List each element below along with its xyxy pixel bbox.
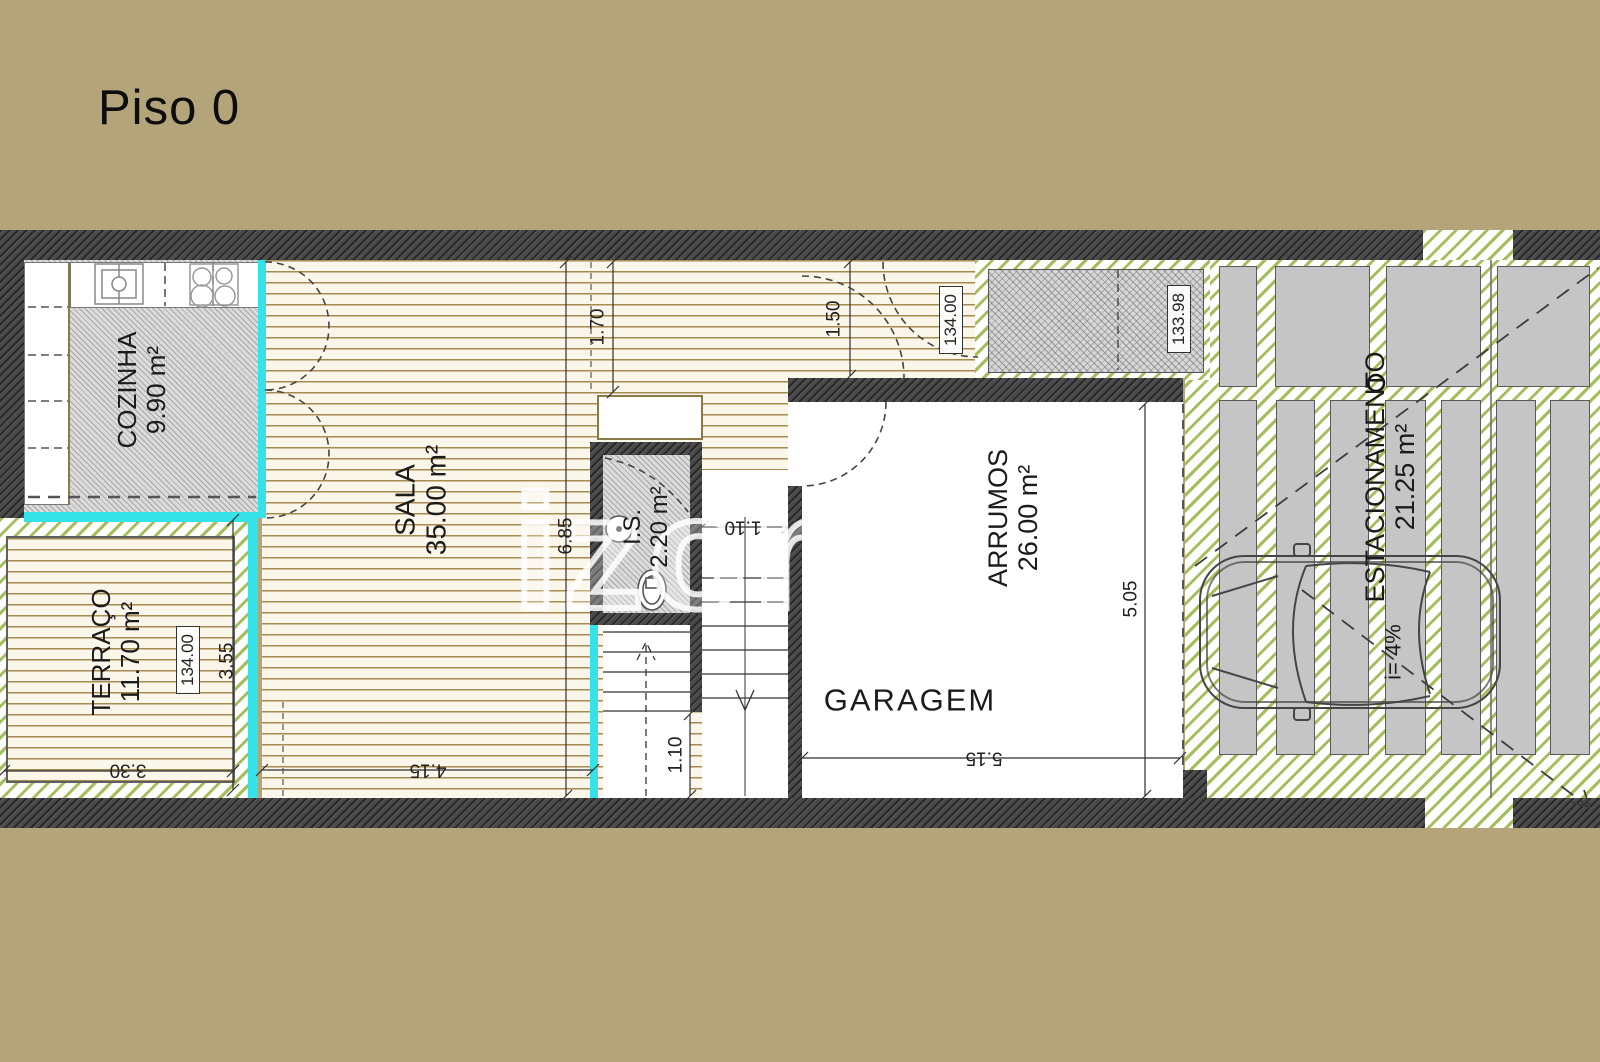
window-terraco-sala <box>248 518 258 798</box>
level-marker-hall: 134.00 <box>939 286 963 354</box>
dim-stair-landing: 1.10 <box>665 737 686 774</box>
driveway-gap-top <box>1423 230 1513 260</box>
paver-strip <box>1441 400 1481 755</box>
paver-block <box>1497 266 1590 387</box>
dim-stair-width: 1.10 <box>725 516 762 537</box>
paver-block <box>1219 266 1257 387</box>
paver-block <box>1275 266 1370 387</box>
slope-label: i= 4% <box>1382 624 1407 680</box>
paver-strip <box>1219 400 1257 755</box>
dim-terraco-width: 3.30 <box>110 759 147 780</box>
wall-bottom-left <box>0 798 1425 828</box>
driveway-gap-bottom <box>1425 798 1513 828</box>
room-label-sala: SALA 35.00 m² <box>390 445 453 556</box>
dim-sala-width: 4.15 <box>410 759 447 780</box>
wall-top-left <box>0 230 1423 260</box>
hall-cabinet <box>597 395 703 440</box>
paver-strip <box>1550 400 1590 755</box>
door-kitchen-sala-glass <box>258 260 266 518</box>
wall-stub-garage-door <box>1183 770 1207 798</box>
wall-bottom-right <box>1513 798 1600 828</box>
paver-strip <box>1276 400 1315 755</box>
lot-boundary-line <box>1490 260 1492 798</box>
dim-sala-height: 6.85 <box>555 518 576 555</box>
dim-garagem-height: 5.05 <box>1120 581 1141 618</box>
dim-garagem-width: 5.15 <box>966 747 1003 768</box>
floor-plan: izome® COZINHA 9.90 m² SALA 35.00 m² TER… <box>0 0 1600 1062</box>
page-title: Piso 0 <box>98 80 240 136</box>
kitchen-counter-left <box>24 262 70 505</box>
room-label-cozinha: COZINHA 9.90 m² <box>113 332 171 449</box>
paver-strip <box>1496 400 1536 755</box>
window-kitchen-terraco <box>24 512 258 522</box>
dim-entry-depth: 1.70 <box>587 309 608 346</box>
wall-top-right <box>1513 230 1600 260</box>
level-marker-terraco: 134.00 <box>176 626 200 694</box>
room-label-garagem: GARAGEM <box>824 684 996 719</box>
room-label-arrumos: ARRUMOS 26.00 m² <box>983 449 1043 587</box>
kitchen-counter-top <box>70 262 262 308</box>
wall-left <box>0 230 24 518</box>
room-label-estacionamento: ESTACIONAMENTO 21.25 m² <box>1360 351 1420 602</box>
level-marker-ramp: 133.98 <box>1167 285 1191 353</box>
wall-garage-top <box>788 378 1183 402</box>
dim-terraco-height: 3.55 <box>216 643 237 680</box>
room-label-terraco: TERRAÇO 11.70 m² <box>87 588 145 715</box>
room-label-is: I.S. 2.20 m² <box>620 486 674 567</box>
window-stairwell <box>590 625 598 798</box>
dim-corridor-depth: 1.50 <box>823 301 844 338</box>
watermark: izome® <box>513 472 1027 634</box>
